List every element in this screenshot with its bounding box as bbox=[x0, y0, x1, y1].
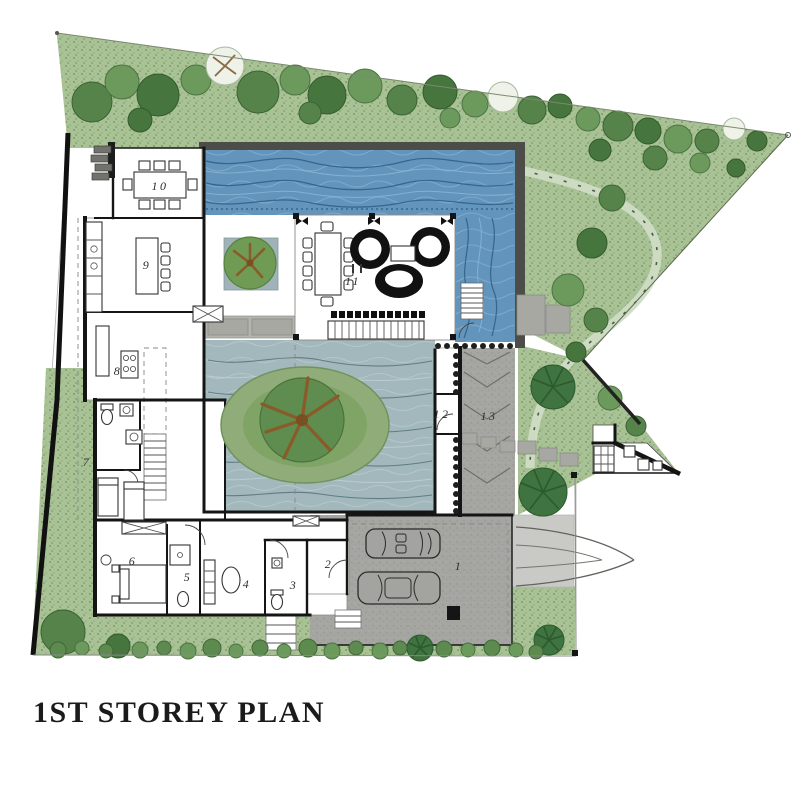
pool-steps bbox=[461, 283, 483, 319]
stairs bbox=[144, 434, 166, 500]
room-label-10: 10 bbox=[152, 179, 169, 193]
floor-plan-canvas: 1 2 3 4 5 6 7 8 9 10 11 12 13 bbox=[0, 0, 800, 800]
room-label-13: 13 bbox=[481, 409, 498, 423]
room-label-1: 1 bbox=[455, 559, 464, 573]
car-convertible bbox=[366, 529, 440, 558]
room-label-6: 6 bbox=[129, 554, 138, 568]
room-label-9: 9 bbox=[143, 258, 152, 272]
kitchen-counter bbox=[86, 222, 102, 312]
room-label-8: 8 bbox=[114, 364, 123, 378]
car-sedan bbox=[358, 572, 440, 604]
plan-title: 1ST STOREY PLAN bbox=[33, 696, 325, 730]
room-label-12: 12 bbox=[434, 407, 451, 421]
courtyard-tree bbox=[224, 237, 276, 289]
room-label-5: 5 bbox=[184, 570, 193, 584]
garden-west-wedge bbox=[33, 368, 100, 640]
room-label-4: 4 bbox=[243, 577, 252, 591]
pond-island-tree bbox=[221, 367, 389, 483]
room-label-7: 7 bbox=[83, 455, 92, 469]
room-label-2: 2 bbox=[325, 557, 334, 571]
room-label-11: 11 bbox=[345, 274, 361, 288]
room-label-3: 3 bbox=[289, 578, 299, 592]
floor-plan: 1 2 3 4 5 6 7 8 9 10 11 12 13 1ST STOREY… bbox=[0, 0, 800, 800]
